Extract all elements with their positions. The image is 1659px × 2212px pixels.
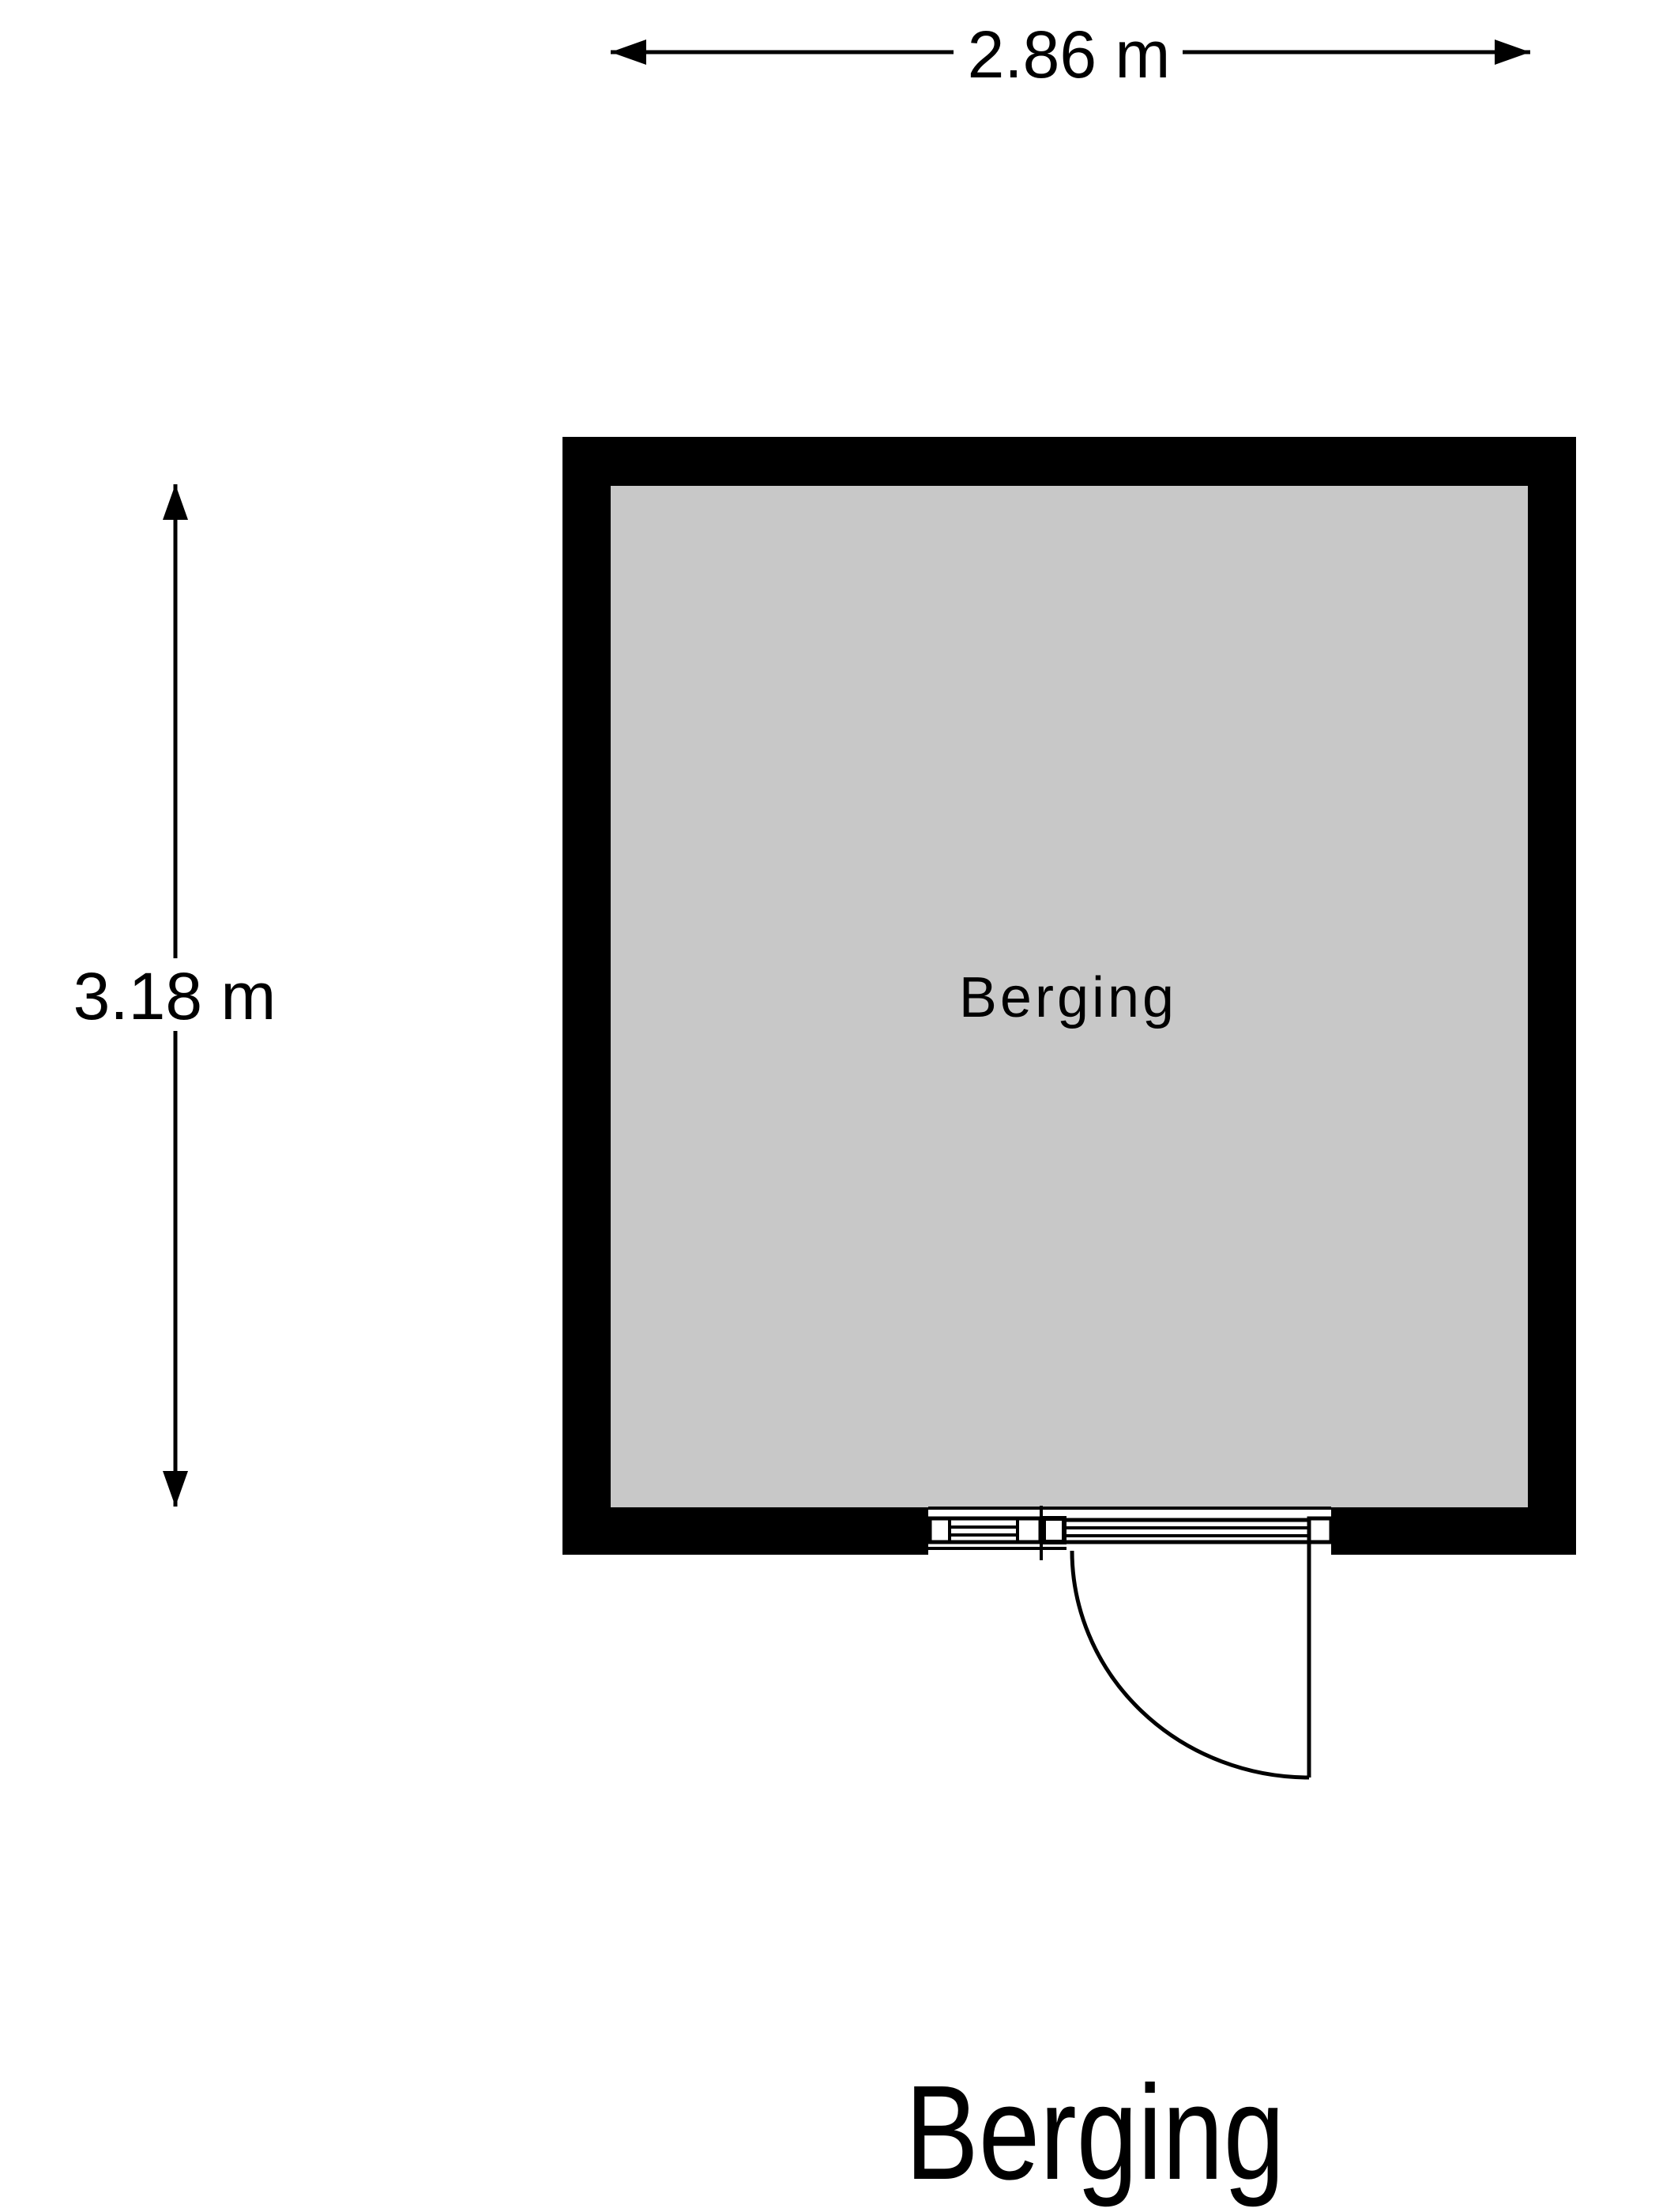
door-swing-arc: [1072, 1551, 1309, 1777]
dimension-width-label: 2.86 m: [968, 17, 1171, 92]
arrow-up-icon: [163, 484, 188, 520]
door-post-right: [1309, 1518, 1331, 1542]
arrow-down-icon: [163, 1471, 188, 1507]
room-label: Berging: [959, 966, 1177, 1029]
door-swing: [1072, 1542, 1309, 1777]
floorplan-page: 2.86 m 3.18 m: [0, 0, 1659, 2212]
arrow-left-icon: [611, 39, 646, 65]
floorplan-drawing: 2.86 m 3.18 m: [0, 0, 1659, 2212]
dimension-height-label: 3.18 m: [73, 959, 276, 1033]
plan-title-group: Berging: [905, 2057, 1285, 2207]
window-frame: [930, 1518, 1040, 1542]
arrow-right-icon: [1495, 39, 1530, 65]
door-post-left: [1044, 1518, 1064, 1542]
plan-title: Berging: [905, 2057, 1285, 2207]
